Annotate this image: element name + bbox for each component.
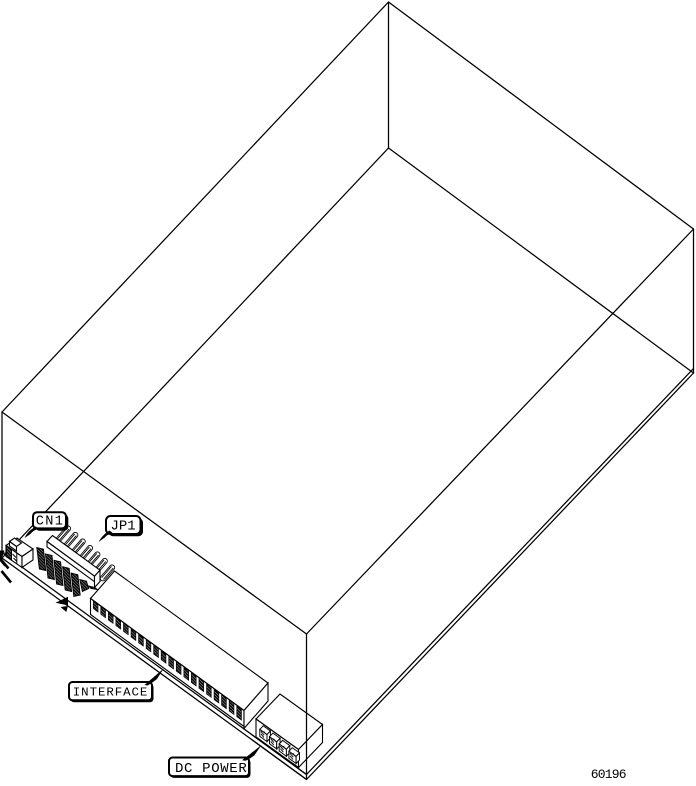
svg-text:INTERFACE: INTERFACE — [73, 686, 148, 700]
svg-text:CN1: CN1 — [36, 515, 64, 530]
svg-text:DC POWER: DC POWER — [175, 761, 247, 777]
svg-text:60196: 60196 — [591, 767, 626, 782]
svg-text:JP1: JP1 — [111, 518, 136, 534]
